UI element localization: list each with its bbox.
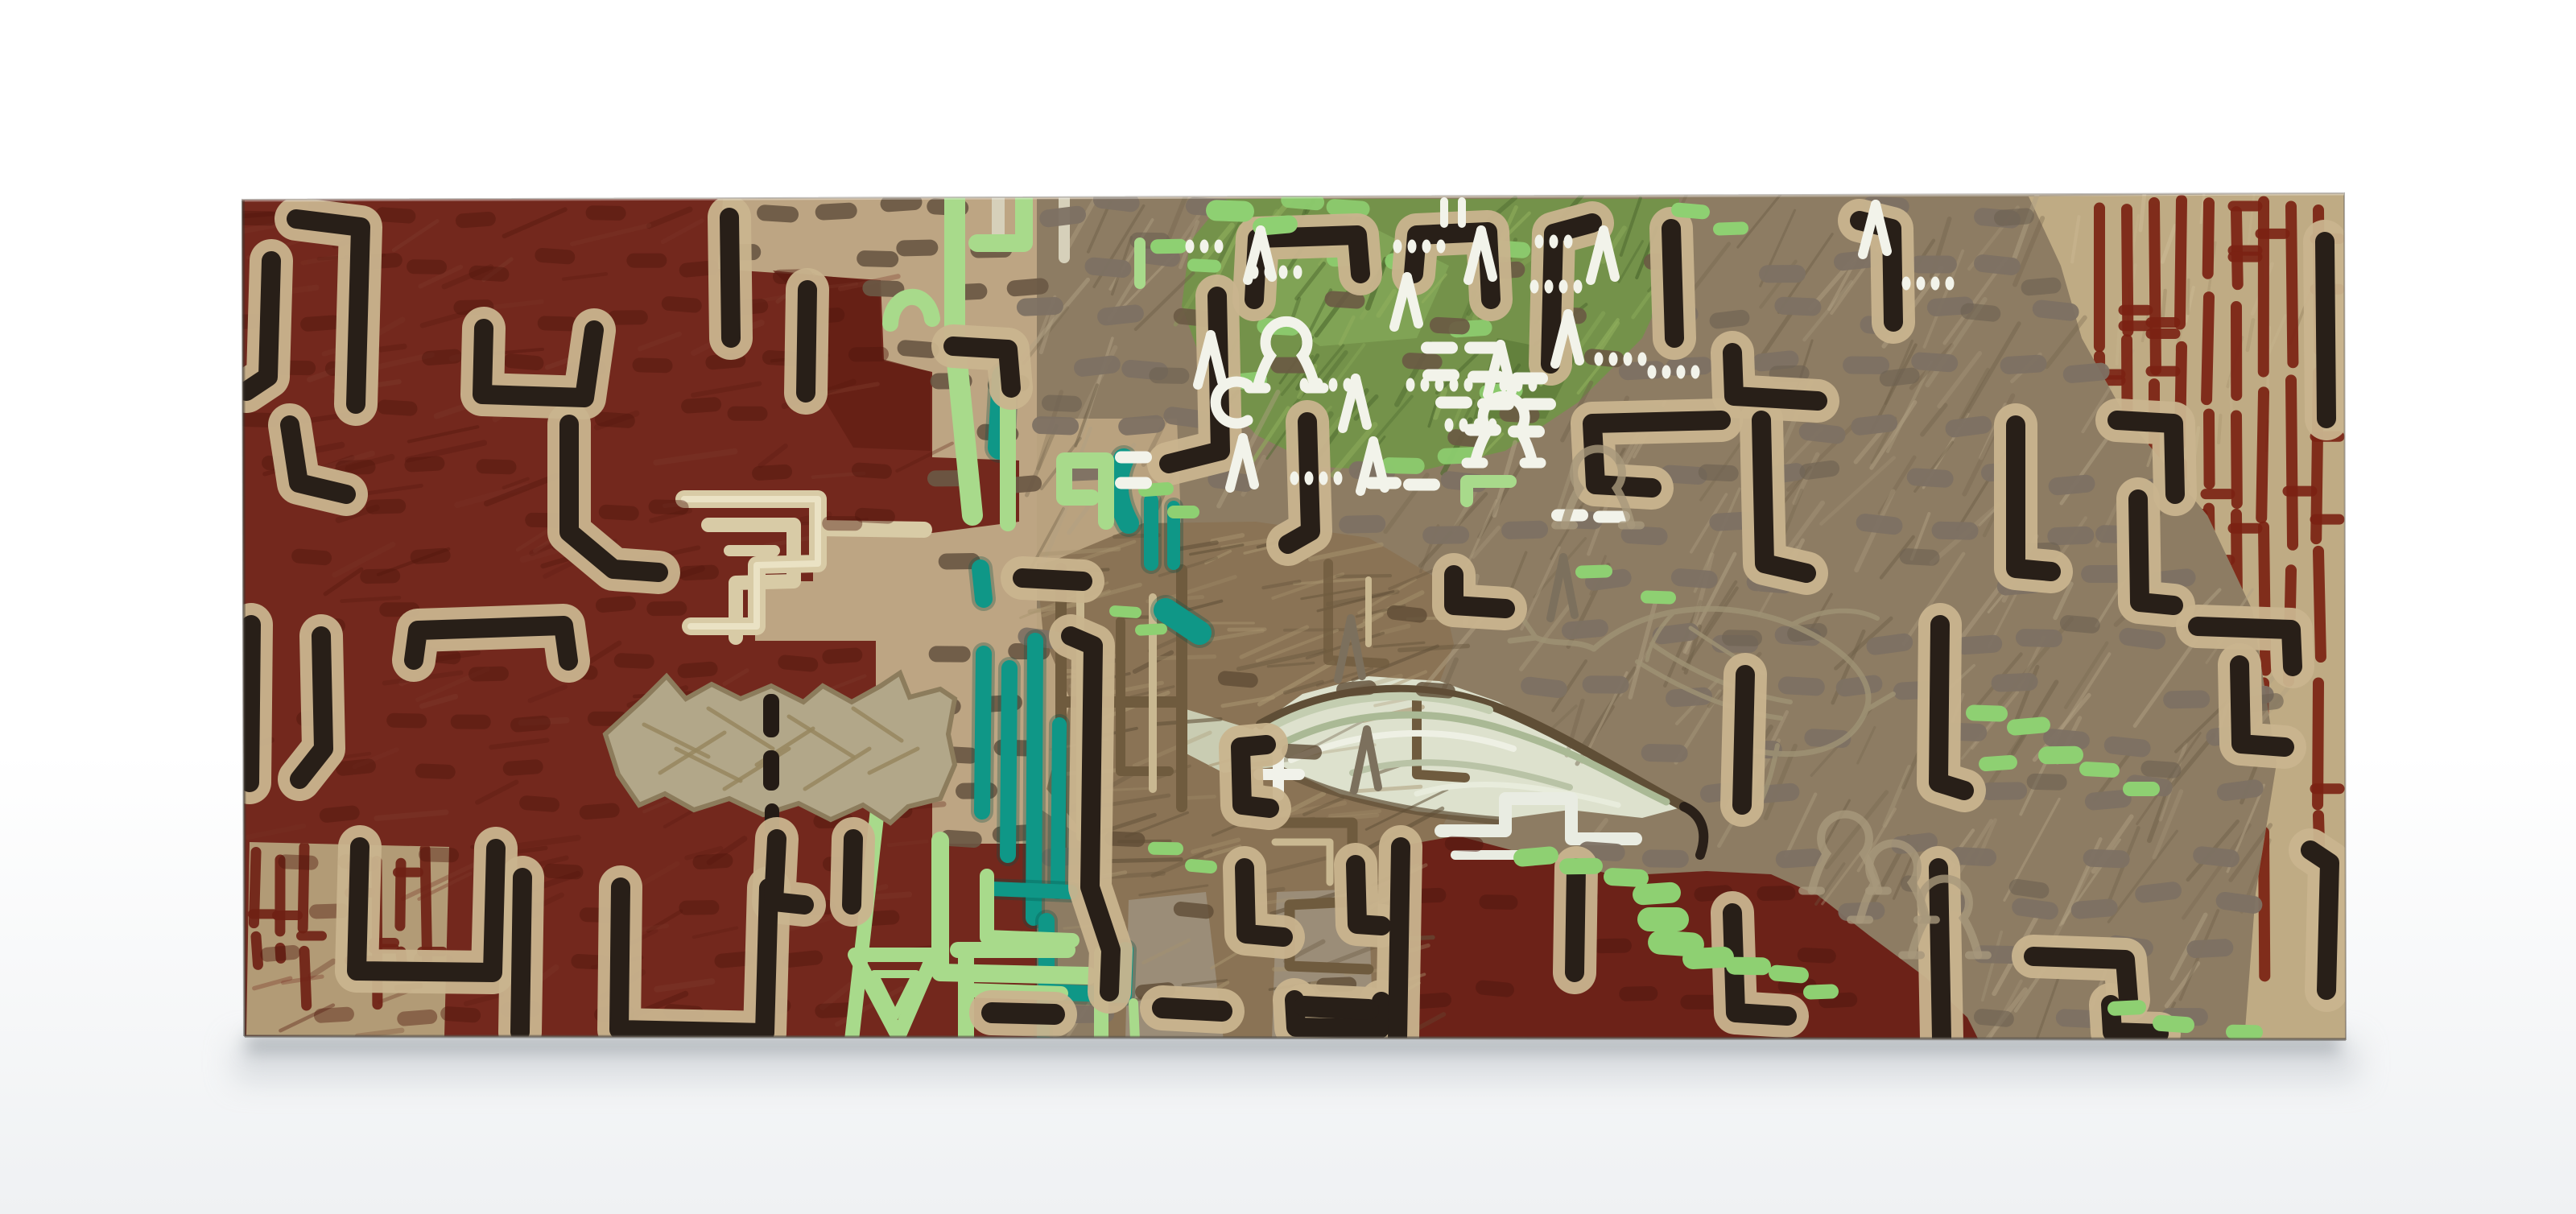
- painting-canvas: [211, 163, 2346, 1066]
- artwork-photo: [0, 0, 2576, 1214]
- artwork-photo-frame: [0, 0, 2576, 1214]
